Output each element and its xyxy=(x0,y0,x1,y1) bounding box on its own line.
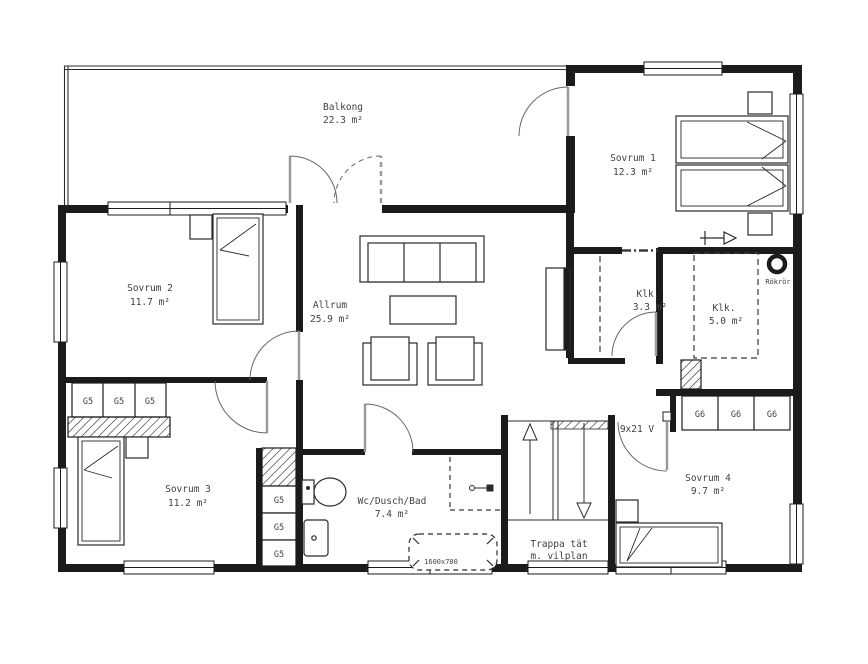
bathroom-door xyxy=(365,404,413,452)
stair-label: Trappa tät m. vilplan xyxy=(530,539,587,562)
floor-plan-page: Balkong 22.3 m² Sovrum 1 12.3 m² Sovrum … xyxy=(0,0,868,664)
window-sovrum3-left xyxy=(54,468,67,528)
room-label-sovrum2: Sovrum 2 11.7 m² xyxy=(127,283,173,308)
room-label-allrum: Allrum 25.9 m² xyxy=(310,300,350,325)
bed-sovrum4 xyxy=(616,523,722,567)
room-label-balkong: Balkong 22.3 m² xyxy=(323,102,363,126)
niche-hatch-box xyxy=(262,448,296,486)
wardrobe-label-g6-2: G6 xyxy=(731,410,741,420)
svg-text:12.3 m²: 12.3 m² xyxy=(613,167,653,178)
staircase xyxy=(508,421,608,520)
svg-text:9.7 m²: 9.7 m² xyxy=(691,486,725,497)
chimney-symbol xyxy=(769,256,785,272)
bathtub-dim-label: 1600x700 xyxy=(424,558,458,566)
wardrobe-label-g5-4: G5 xyxy=(274,496,284,506)
armchair-left xyxy=(363,337,417,385)
floor-plan-drawing: Balkong 22.3 m² Sovrum 1 12.3 m² Sovrum … xyxy=(0,0,868,664)
nightstand-sovrum1-bottom xyxy=(748,213,772,235)
sovrum2-door xyxy=(250,331,299,380)
svg-text:22.3 m²: 22.3 m² xyxy=(323,115,363,126)
door-size-label: 9x21 V xyxy=(620,424,655,435)
sink xyxy=(304,520,328,556)
nightstand-sovrum3 xyxy=(126,437,148,458)
bed-sovrum2 xyxy=(213,214,263,324)
svg-text:Trappa tät: Trappa tät xyxy=(530,539,587,550)
window-sovrum2-left xyxy=(54,262,67,342)
nightstand-sovrum1-top xyxy=(748,92,772,114)
dashed-guides xyxy=(450,251,758,511)
klk-door xyxy=(612,312,656,356)
svg-text:Sovrum 4: Sovrum 4 xyxy=(685,473,731,484)
window-sovrum3-bottom xyxy=(124,561,214,574)
armchair-right xyxy=(428,337,482,385)
stair-up-arrow xyxy=(523,424,537,440)
klk50-shaft-hatch xyxy=(681,360,701,389)
wardrobe-label-g5-5: G5 xyxy=(274,523,284,533)
window-sovrum4-right xyxy=(790,504,803,564)
svg-text:25.9 m²: 25.9 m² xyxy=(310,314,350,325)
svg-text:m. vilplan: m. vilplan xyxy=(530,551,587,562)
svg-text:Balkong: Balkong xyxy=(323,102,363,113)
svg-text:11.2 m²: 11.2 m² xyxy=(168,498,208,509)
shower-mixer-icon xyxy=(470,485,494,491)
media-unit xyxy=(546,268,570,350)
window-balcony-wall xyxy=(108,202,286,215)
room-label-sovrum3: Sovrum 3 11.2 m² xyxy=(165,484,211,509)
wardrobes-sovrum3-row xyxy=(68,383,170,437)
balcony-railing xyxy=(64,66,566,205)
window-landing-bottom xyxy=(528,561,608,574)
wardrobe-label-g5-3: G5 xyxy=(145,397,155,407)
bed-sovrum1-a xyxy=(676,116,788,163)
room-label-klk50: Klk. 5.0 m² xyxy=(709,303,743,327)
sovrum4-door xyxy=(618,412,671,471)
wardrobe-label-g6-3: G6 xyxy=(767,410,777,420)
stair-cut-hatch xyxy=(551,421,608,429)
wardrobe-label-g6-1: G6 xyxy=(695,410,705,420)
sloped-ceiling-hatch xyxy=(68,417,170,437)
wardrobe-label-g5-2: G5 xyxy=(114,397,124,407)
sovrum1-balcony-door xyxy=(519,87,568,136)
wardrobe-label-g5-6: G5 xyxy=(274,550,284,560)
svg-text:Allrum: Allrum xyxy=(313,300,348,311)
window-sovrum1-top xyxy=(644,62,722,75)
svg-text:5.0 m²: 5.0 m² xyxy=(709,316,743,327)
coffee-table xyxy=(390,296,456,324)
stair-down-arrow xyxy=(577,503,591,518)
svg-text:Klk.: Klk. xyxy=(713,303,736,314)
svg-text:Sovrum 3: Sovrum 3 xyxy=(165,484,211,495)
nightstand-sovrum4 xyxy=(616,500,638,522)
svg-text:Sovrum 2: Sovrum 2 xyxy=(127,283,173,294)
svg-text:Wc/Dusch/Bad: Wc/Dusch/Bad xyxy=(358,496,427,507)
sovrum3-door xyxy=(215,381,267,433)
svg-text:11.7 m²: 11.7 m² xyxy=(130,297,170,308)
room-label-wc: Wc/Dusch/Bad 7.4 m² xyxy=(358,496,427,520)
direction-arrow-icon xyxy=(700,231,736,245)
svg-text:7.4 m²: 7.4 m² xyxy=(375,509,409,520)
sofa xyxy=(360,236,484,282)
balcony-double-door xyxy=(290,156,381,203)
chimney-icon xyxy=(769,256,785,272)
bed-sovrum1-b xyxy=(676,165,788,211)
chimney-label: Rökrör xyxy=(765,278,790,286)
bed-sovrum3 xyxy=(78,437,124,545)
toilet xyxy=(302,478,346,506)
wardrobes-niche xyxy=(262,448,296,566)
svg-text:Klk.: Klk. xyxy=(637,289,660,300)
nightstand-sovrum2 xyxy=(190,215,212,239)
room-label-sovrum1: Sovrum 1 12.3 m² xyxy=(610,153,656,178)
wardrobe-label-g5-1: G5 xyxy=(83,397,93,407)
room-label-sovrum4: Sovrum 4 9.7 m² xyxy=(685,473,731,497)
svg-text:3.3 m²: 3.3 m² xyxy=(633,302,667,313)
window-sovrum1-right xyxy=(790,94,803,214)
svg-text:Sovrum 1: Sovrum 1 xyxy=(610,153,656,164)
